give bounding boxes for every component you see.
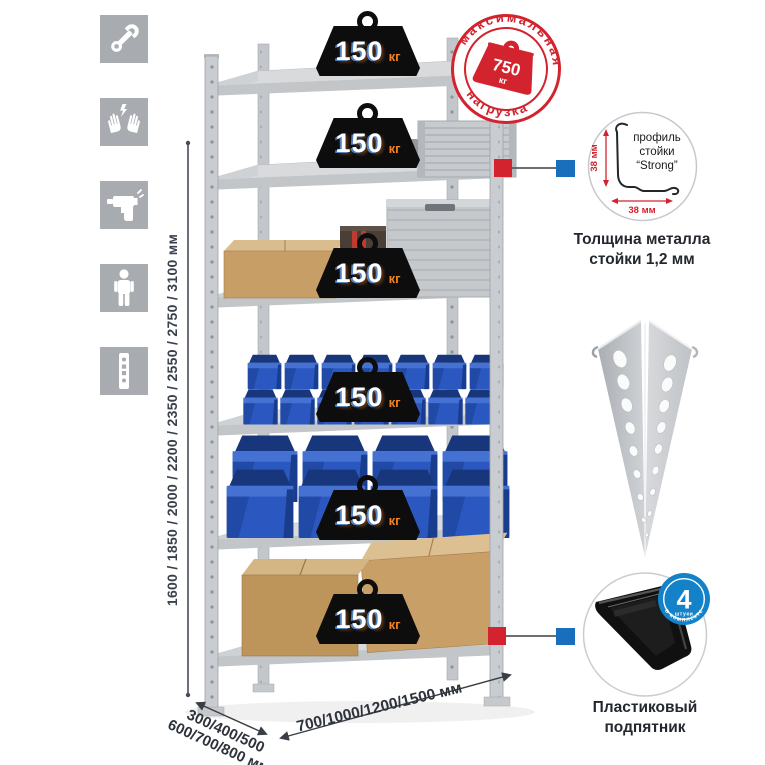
profile-caption-line1: Толщина металла: [574, 231, 711, 248]
load-value: 150: [336, 382, 384, 413]
load-value: 150: [336, 500, 384, 531]
included-count-badge: 4 штуки в комплекте: [658, 573, 710, 625]
load-value: 150: [336, 258, 384, 289]
load-value: 150: [336, 36, 384, 67]
shelf-load-badge: 150кг: [316, 490, 420, 540]
pictogram-perforated-profile: [100, 347, 148, 395]
load-unit: кг: [389, 513, 401, 528]
shelving-product-infographic: 1600 / 1850 / 2000 / 2200 / 2350 / 2550 …: [0, 0, 765, 765]
load-unit: кг: [389, 617, 401, 632]
load-unit: кг: [389, 49, 401, 64]
profile-caption: Толщина металла стойки 1,2 мм: [557, 230, 727, 270]
pictogram-gloves: [100, 98, 148, 146]
height-dimension-label: 1600 / 1850 / 2000 / 2200 / 2350 / 2550 …: [161, 158, 183, 682]
pictogram-drill: [100, 181, 148, 229]
post-profile-callout: 38 мм 38 мм профиль стойки “Strong”: [577, 101, 708, 232]
profile-dim-horizontal-label: 38 мм: [628, 205, 655, 216]
angle-post-image: [588, 297, 703, 567]
wrench-icon: [100, 15, 148, 63]
shelf-load-badge: 150кг: [316, 26, 420, 76]
shelf-load-badge: 150кг: [316, 594, 420, 644]
profile-dim-vertical-label: 38 мм: [589, 144, 600, 171]
pictogram-person: [100, 264, 148, 312]
drill-icon: [100, 181, 148, 229]
badge-count-value: 4: [676, 585, 691, 615]
foot-caption-line2: подпятник: [604, 719, 685, 736]
shelf-load-badge: 150кг: [316, 372, 420, 422]
plastic-foot-callout: 4 штуки в комплекте: [580, 570, 716, 706]
load-value: 150: [336, 128, 384, 159]
load-value: 150: [336, 604, 384, 635]
profile-label-line1: профиль: [633, 132, 681, 144]
foot-plate: [253, 684, 274, 692]
perforated-profile-icon: [100, 347, 148, 395]
foot-plate: [484, 697, 510, 706]
load-unit: кг: [389, 271, 401, 286]
load-unit: кг: [389, 395, 401, 410]
load-unit: кг: [389, 141, 401, 156]
connector-blue-square: [556, 160, 575, 177]
shelf-load-badge: 150кг: [316, 118, 420, 168]
pictogram-assembly: [100, 15, 148, 63]
plastic-foot-caption: Пластиковый подпятник: [560, 698, 730, 738]
profile-label-line3: “Strong”: [636, 160, 678, 172]
feature-icon-column: [100, 15, 148, 430]
connector-red-square: [488, 627, 506, 645]
connector-blue-square: [556, 628, 575, 645]
max-load-stamp: максимальная нагрузка 750 кг: [441, 4, 571, 134]
profile-caption-line2: стойки 1,2 мм: [589, 251, 694, 268]
shelf-load-badge: 150кг: [316, 248, 420, 298]
foot-caption-line1: Пластиковый: [593, 699, 698, 716]
profile-label-line2: стойки: [639, 146, 674, 158]
person-icon: [100, 264, 148, 312]
connector-red-square: [494, 159, 512, 177]
gloves-icon: [100, 98, 148, 146]
